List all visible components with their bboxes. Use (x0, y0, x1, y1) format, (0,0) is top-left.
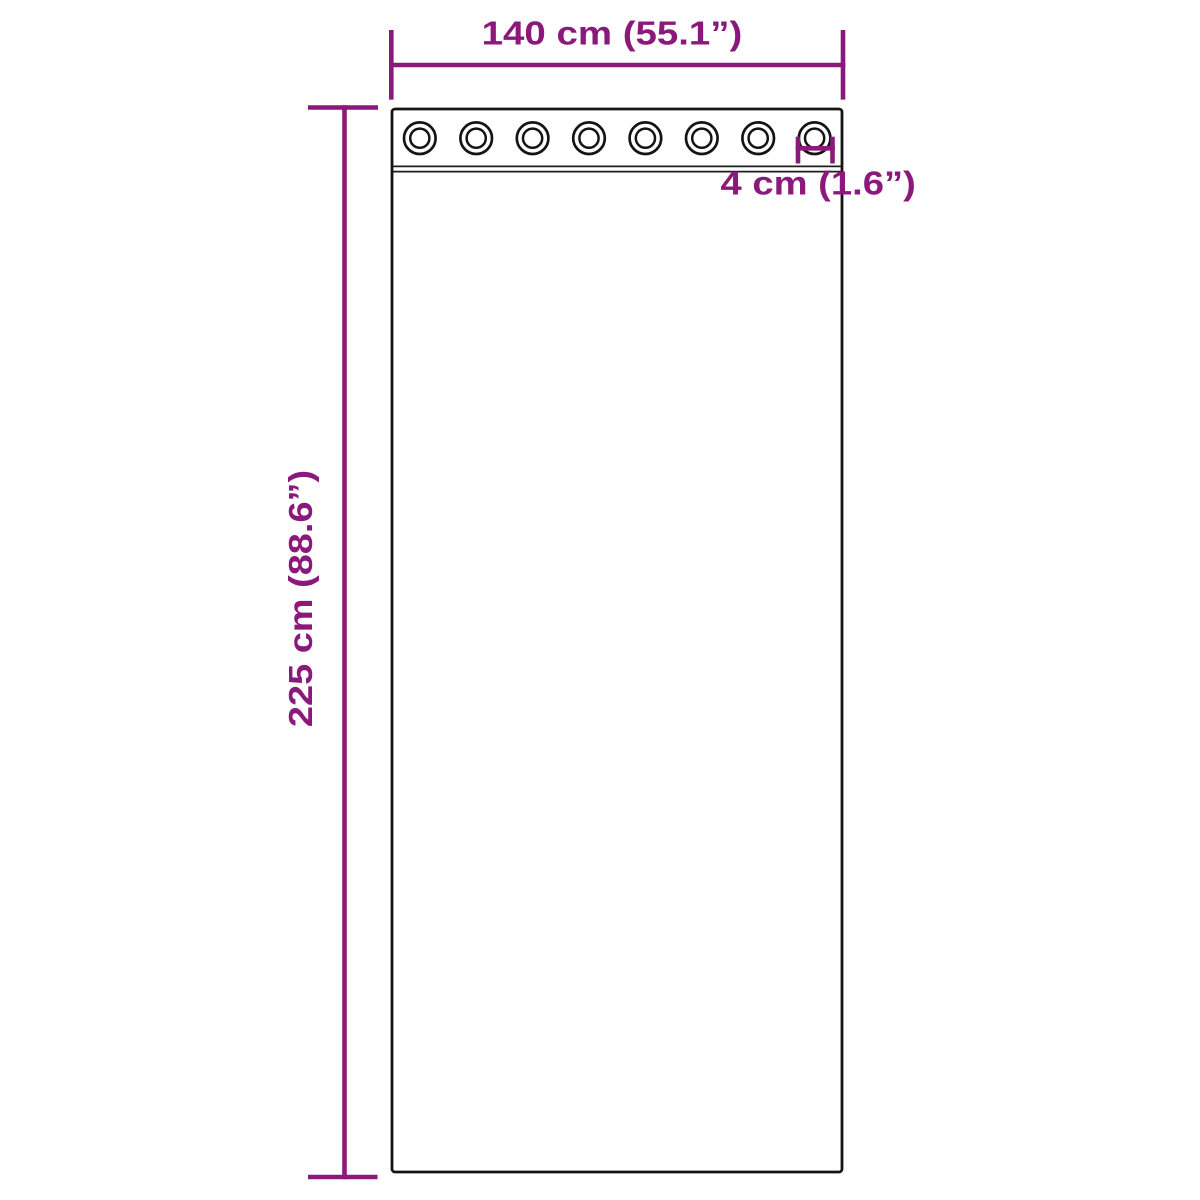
svg-text:140 cm (55.1”): 140 cm (55.1”) (482, 15, 743, 52)
svg-text:4 cm (1.6”): 4 cm (1.6”) (721, 165, 916, 202)
svg-text:225 cm (88.6”): 225 cm (88.6”) (282, 470, 319, 727)
